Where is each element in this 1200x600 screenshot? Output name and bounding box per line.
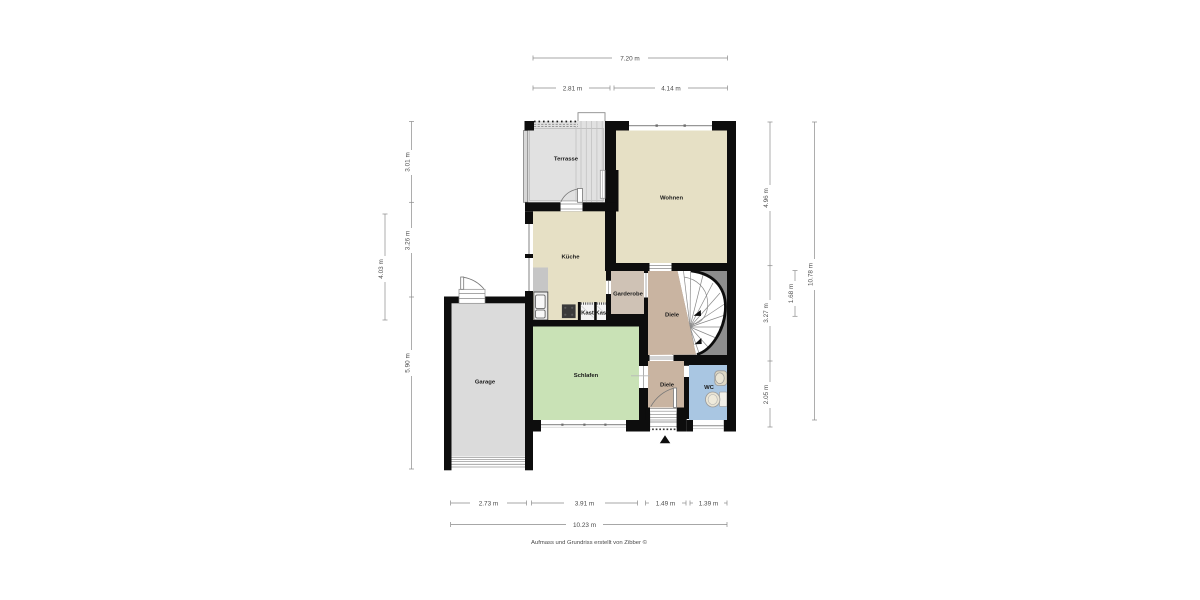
svg-text:2.81 m: 2.81 m <box>563 85 583 92</box>
svg-text:Küche: Küche <box>561 255 580 261</box>
svg-text:2.05 m: 2.05 m <box>763 385 770 405</box>
svg-text:Aufmass und Grundriss erstellt: Aufmass und Grundriss erstellt von Zibbe… <box>531 539 648 546</box>
svg-text:Terrasse: Terrasse <box>554 156 579 162</box>
svg-text:1.49 m: 1.49 m <box>656 500 676 507</box>
svg-text:Garage: Garage <box>475 380 496 386</box>
svg-text:2.73 m: 2.73 m <box>479 500 499 507</box>
svg-text:7.20 m: 7.20 m <box>620 55 640 62</box>
svg-text:Diele: Diele <box>665 313 680 319</box>
svg-text:3.01 m: 3.01 m <box>405 152 412 172</box>
svg-text:3.27 m: 3.27 m <box>763 303 770 323</box>
svg-text:Schlafen: Schlafen <box>574 373 599 379</box>
svg-text:4.96 m: 4.96 m <box>763 188 770 208</box>
svg-text:3.26 m: 3.26 m <box>405 231 412 251</box>
svg-text:4.14 m: 4.14 m <box>661 85 681 92</box>
svg-text:1.68 m: 1.68 m <box>788 284 795 304</box>
svg-text:10.23 m: 10.23 m <box>573 522 596 529</box>
svg-text:3.91 m: 3.91 m <box>575 500 595 507</box>
svg-text:1.39 m: 1.39 m <box>699 500 719 507</box>
svg-text:4.03 m: 4.03 m <box>378 259 385 279</box>
svg-text:Kast: Kast <box>595 310 608 316</box>
svg-text:Kast: Kast <box>581 310 594 316</box>
svg-text:5.90 m: 5.90 m <box>405 353 412 373</box>
svg-text:Diele: Diele <box>660 382 675 388</box>
svg-text:Wohnen: Wohnen <box>660 195 684 201</box>
svg-text:10.78 m: 10.78 m <box>808 263 815 286</box>
svg-text:WC: WC <box>704 385 715 391</box>
svg-text:Garderobe: Garderobe <box>613 291 644 297</box>
